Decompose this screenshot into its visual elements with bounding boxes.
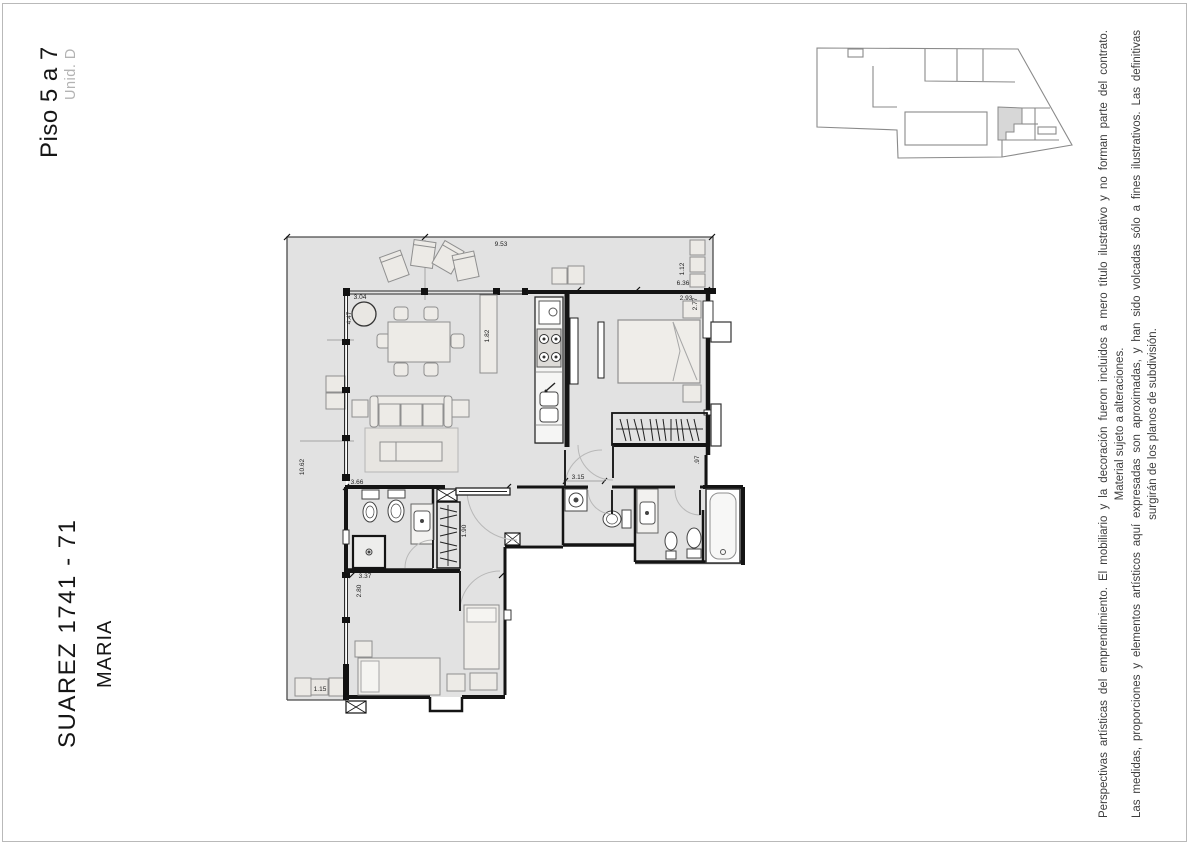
- toilet: [687, 528, 701, 548]
- pillow: [467, 608, 496, 622]
- floor-label: Piso 5 a 7: [36, 28, 64, 158]
- round-table: [352, 302, 376, 326]
- planter: [690, 274, 705, 287]
- dining-chair: [424, 307, 438, 320]
- shaft-box: [437, 489, 457, 501]
- dim-label: 6.36: [677, 280, 690, 287]
- sink-basin: [540, 392, 558, 406]
- terrace-unit: [568, 266, 584, 284]
- dining-chair: [394, 307, 408, 320]
- planter: [295, 678, 311, 696]
- sink-basin: [540, 408, 558, 422]
- planter: [326, 393, 345, 409]
- floor-plan: 9.53 3.04 4.47 1.82 1.12 6.36 2.93 2.77 …: [270, 225, 770, 725]
- side-table: [352, 400, 368, 417]
- sliding-door-rail: [456, 488, 510, 495]
- key-plan-unit-highlight: [998, 107, 1022, 140]
- nightstand: [355, 641, 372, 657]
- key-plan: [805, 36, 1075, 168]
- dim-label: 1.12: [679, 262, 686, 275]
- piers: [711, 322, 731, 446]
- planter: [329, 678, 345, 696]
- dim-label: 2.93: [680, 295, 693, 302]
- pocket-door: [570, 318, 578, 384]
- dim-label: 4.47: [346, 311, 353, 324]
- double-bed: [618, 320, 700, 383]
- nightstand: [447, 674, 465, 691]
- toilet-tank: [687, 549, 701, 558]
- dim-label: 3.66: [351, 479, 364, 486]
- dining-chair: [424, 363, 438, 376]
- dim-label: 3.04: [354, 294, 367, 301]
- kitchen: [535, 297, 563, 443]
- planter: [690, 240, 705, 255]
- bidet-tank: [362, 490, 379, 499]
- bathtub: [706, 489, 740, 563]
- shaft-box: [346, 701, 366, 713]
- disclaimer-line: Perspectivas artísticas del emprendimien…: [1096, 30, 1112, 818]
- dim-label: 10.62: [299, 458, 306, 475]
- wall-panel: [598, 322, 604, 378]
- unit-label: Unid. D: [63, 38, 79, 100]
- dim-label: 3.15: [572, 474, 585, 481]
- dim-label: 2.80: [356, 584, 363, 597]
- dim-label: 9.53: [495, 241, 508, 248]
- legal-disclaimer: Perspectivas artísticas del emprendimien…: [1096, 30, 1162, 818]
- disclaimer-line: surgirán de los planos de subdivisión.: [1145, 30, 1161, 818]
- side-table: [452, 400, 469, 417]
- dining-table: [388, 322, 450, 362]
- pillow: [361, 661, 379, 692]
- project-subname-label: MARIA: [94, 608, 117, 688]
- lounge-chair: [411, 240, 436, 269]
- sofa: [370, 396, 452, 427]
- project-name-label: SUAREZ 1741 - 71: [54, 538, 82, 748]
- bidet: [665, 532, 677, 550]
- disclaimer-line: Las medidas, proporciones y elementos ar…: [1129, 30, 1145, 818]
- terrace-unit: [552, 268, 567, 284]
- plan-sheet: Piso 5 a 7 Unid. D SUAREZ 1741 - 71 MARI…: [0, 0, 1200, 847]
- nightstand: [683, 385, 701, 402]
- disclaimer-line: Material sujeto a alteraciones.: [1112, 30, 1128, 818]
- dim-label: .97: [694, 455, 701, 464]
- dim-label: 1.15: [314, 686, 327, 693]
- coffee-table: [380, 442, 442, 461]
- dim-label: 1.90: [461, 524, 468, 537]
- key-plan-outline: [817, 48, 1072, 158]
- dining-chair: [451, 334, 464, 348]
- dim-label: 3.37: [359, 573, 372, 580]
- dining-chair: [394, 363, 408, 376]
- planter: [690, 257, 705, 272]
- toilet-tank: [622, 510, 631, 528]
- dim-label: 2.77: [692, 297, 699, 310]
- lounge-chair: [452, 251, 479, 281]
- bidet-base: [666, 551, 676, 559]
- dim-label: 1.82: [484, 329, 491, 342]
- toilet-tank: [388, 490, 405, 498]
- dresser: [470, 673, 497, 690]
